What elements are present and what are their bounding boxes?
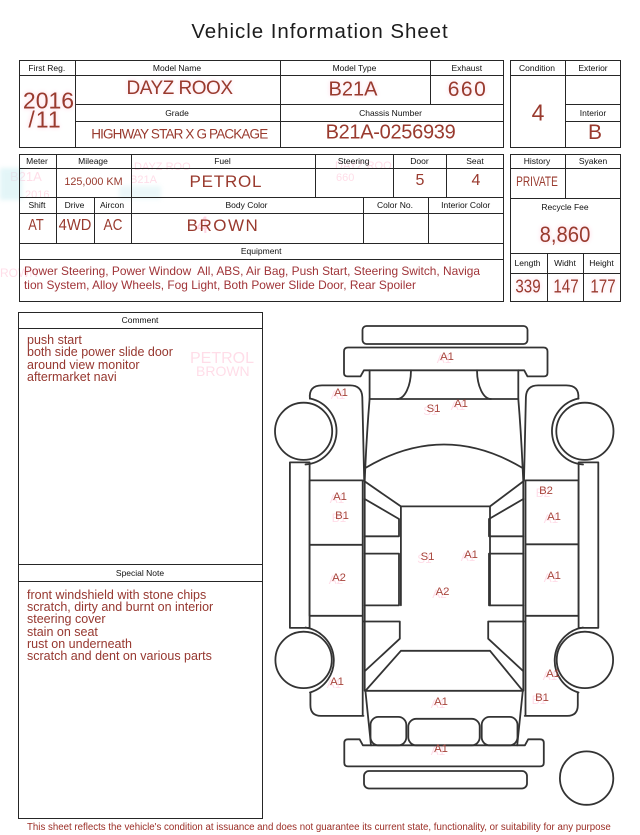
svg-text:A1: A1 bbox=[434, 696, 448, 708]
svg-text:A2: A2 bbox=[332, 572, 346, 584]
svg-text:A1: A1 bbox=[547, 570, 561, 582]
svg-text:A1: A1 bbox=[454, 398, 468, 410]
svg-text:A1: A1 bbox=[464, 549, 478, 561]
svg-text:A2: A2 bbox=[436, 586, 450, 598]
svg-text:B1: B1 bbox=[335, 510, 349, 522]
svg-text:A1: A1 bbox=[434, 743, 448, 755]
svg-text:A1: A1 bbox=[546, 668, 560, 680]
svg-text:A1: A1 bbox=[330, 676, 344, 688]
svg-text:S1: S1 bbox=[421, 551, 435, 563]
svg-text:A1: A1 bbox=[334, 387, 348, 399]
svg-text:A1: A1 bbox=[547, 511, 561, 523]
svg-text:B2: B2 bbox=[539, 485, 553, 497]
svg-text:B1: B1 bbox=[535, 692, 549, 704]
svg-text:A1: A1 bbox=[440, 351, 454, 363]
svg-text:S1: S1 bbox=[427, 403, 441, 415]
svg-text:A1: A1 bbox=[333, 491, 347, 503]
